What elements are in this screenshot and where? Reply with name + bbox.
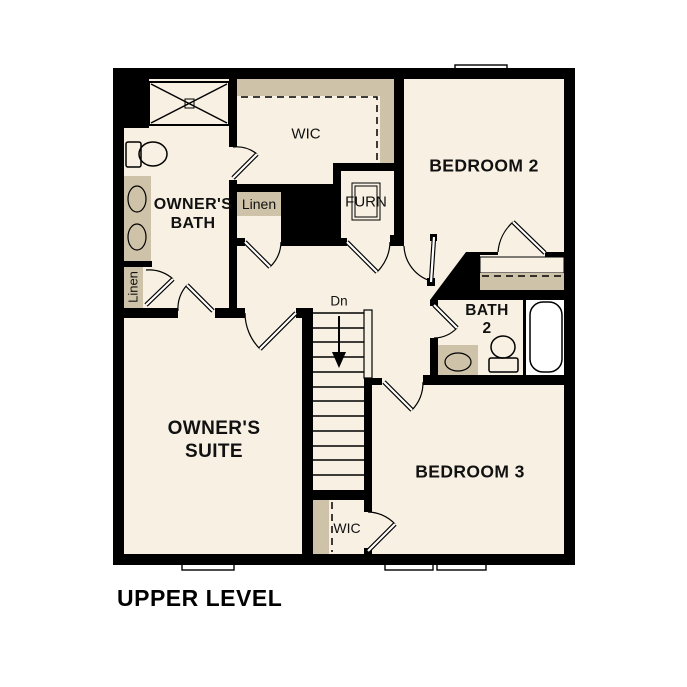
closet-label-linen-left: Linen: [126, 271, 141, 303]
room-label-bedroom2: BEDROOM 2: [429, 156, 539, 177]
closet-label-furn: FURN: [345, 194, 387, 211]
room-label-owners-suite-line1: OWNER'S: [168, 417, 261, 440]
plan-title: UPPER LEVEL: [117, 585, 282, 612]
room-label-owners-bath: OWNER'S BATH: [154, 195, 233, 233]
room-label-wic-top: WIC: [291, 126, 320, 143]
room-label-owners-suite-line2: SUITE: [168, 440, 261, 463]
room-label-owners-bath-line1: OWNER'S: [154, 195, 233, 214]
room-label-bath2: BATH 2: [465, 302, 509, 338]
room-label-owners-bath-line2: BATH: [154, 214, 233, 233]
room-label-bath2-line2: 2: [465, 320, 509, 338]
floor-plan-drawing: [0, 0, 687, 687]
closet-label-linen-mid: Linen: [242, 196, 276, 212]
room-label-bath2-line1: BATH: [465, 302, 509, 320]
closet-label-wic-bottom: WIC: [333, 520, 360, 536]
floor-plan: WIC OWNER'S BATH Linen Linen FURN BEDROO…: [0, 0, 687, 687]
room-label-bedroom3: BEDROOM 3: [415, 462, 525, 483]
stairs-label-dn: Dn: [330, 294, 347, 309]
room-label-owners-suite: OWNER'S SUITE: [168, 417, 261, 463]
